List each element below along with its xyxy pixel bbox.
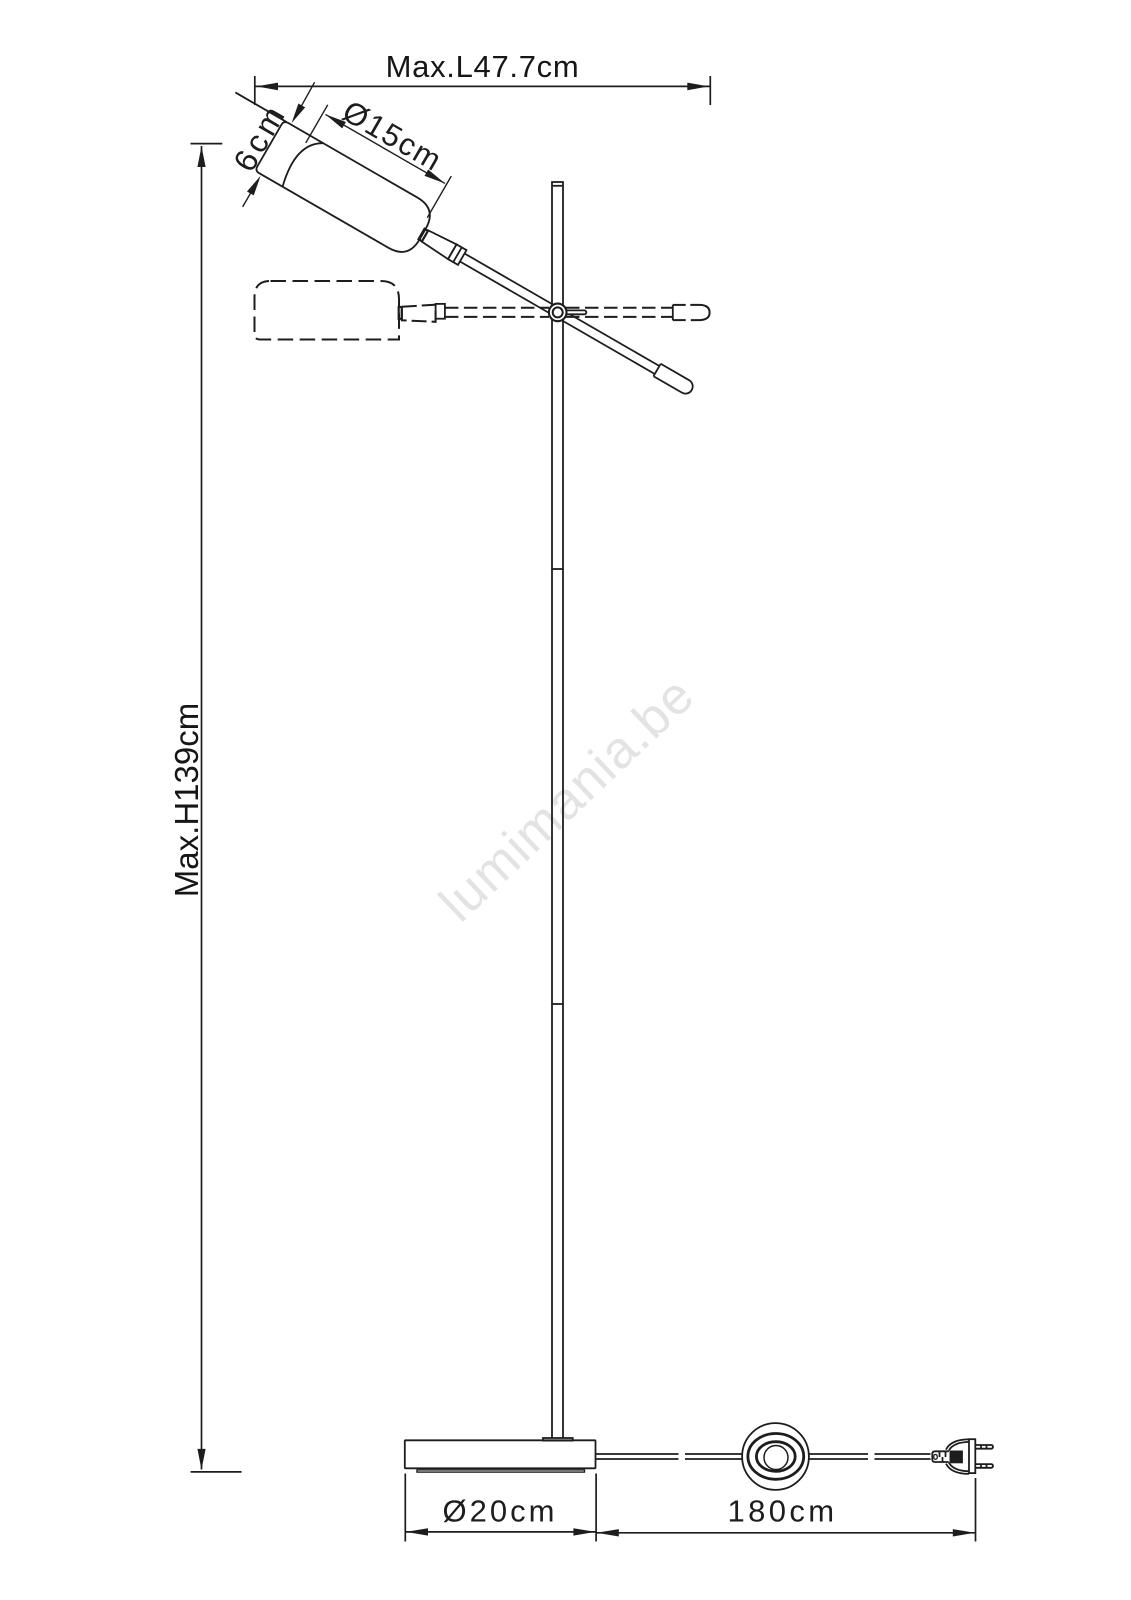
svg-text:Max.L47.7cm: Max.L47.7cm: [386, 49, 580, 84]
svg-text:Ø20cm: Ø20cm: [443, 1494, 558, 1529]
svg-text:180cm: 180cm: [727, 1494, 837, 1529]
svg-text:Max.H139cm: Max.H139cm: [168, 703, 205, 897]
